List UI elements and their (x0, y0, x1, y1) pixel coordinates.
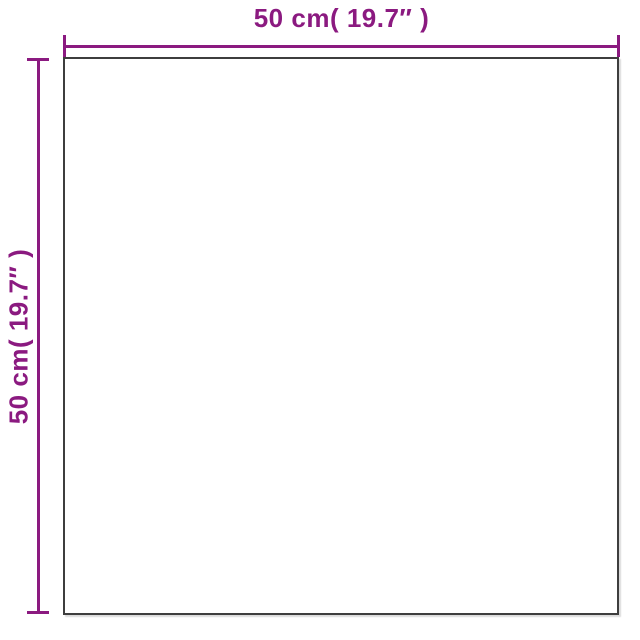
height-dimension-line (37, 58, 40, 614)
height-dimension-tick-bottom (27, 611, 49, 614)
height-dimension-tick-top (27, 58, 49, 61)
height-dimension-label-wrap: 50 cm( 19.7″ ) (0, 57, 37, 615)
height-dimension-label: 50 cm( 19.7″ ) (3, 248, 34, 424)
dimension-diagram: 50 cm( 19.7″ ) 50 cm( 19.7″ ) (0, 0, 640, 640)
width-dimension-tick-left (63, 35, 66, 57)
width-dimension-line (64, 45, 619, 48)
width-dimension-tick-right (617, 35, 620, 57)
product-square-outline (63, 57, 619, 615)
width-dimension-label: 50 cm( 19.7″ ) (64, 3, 619, 34)
